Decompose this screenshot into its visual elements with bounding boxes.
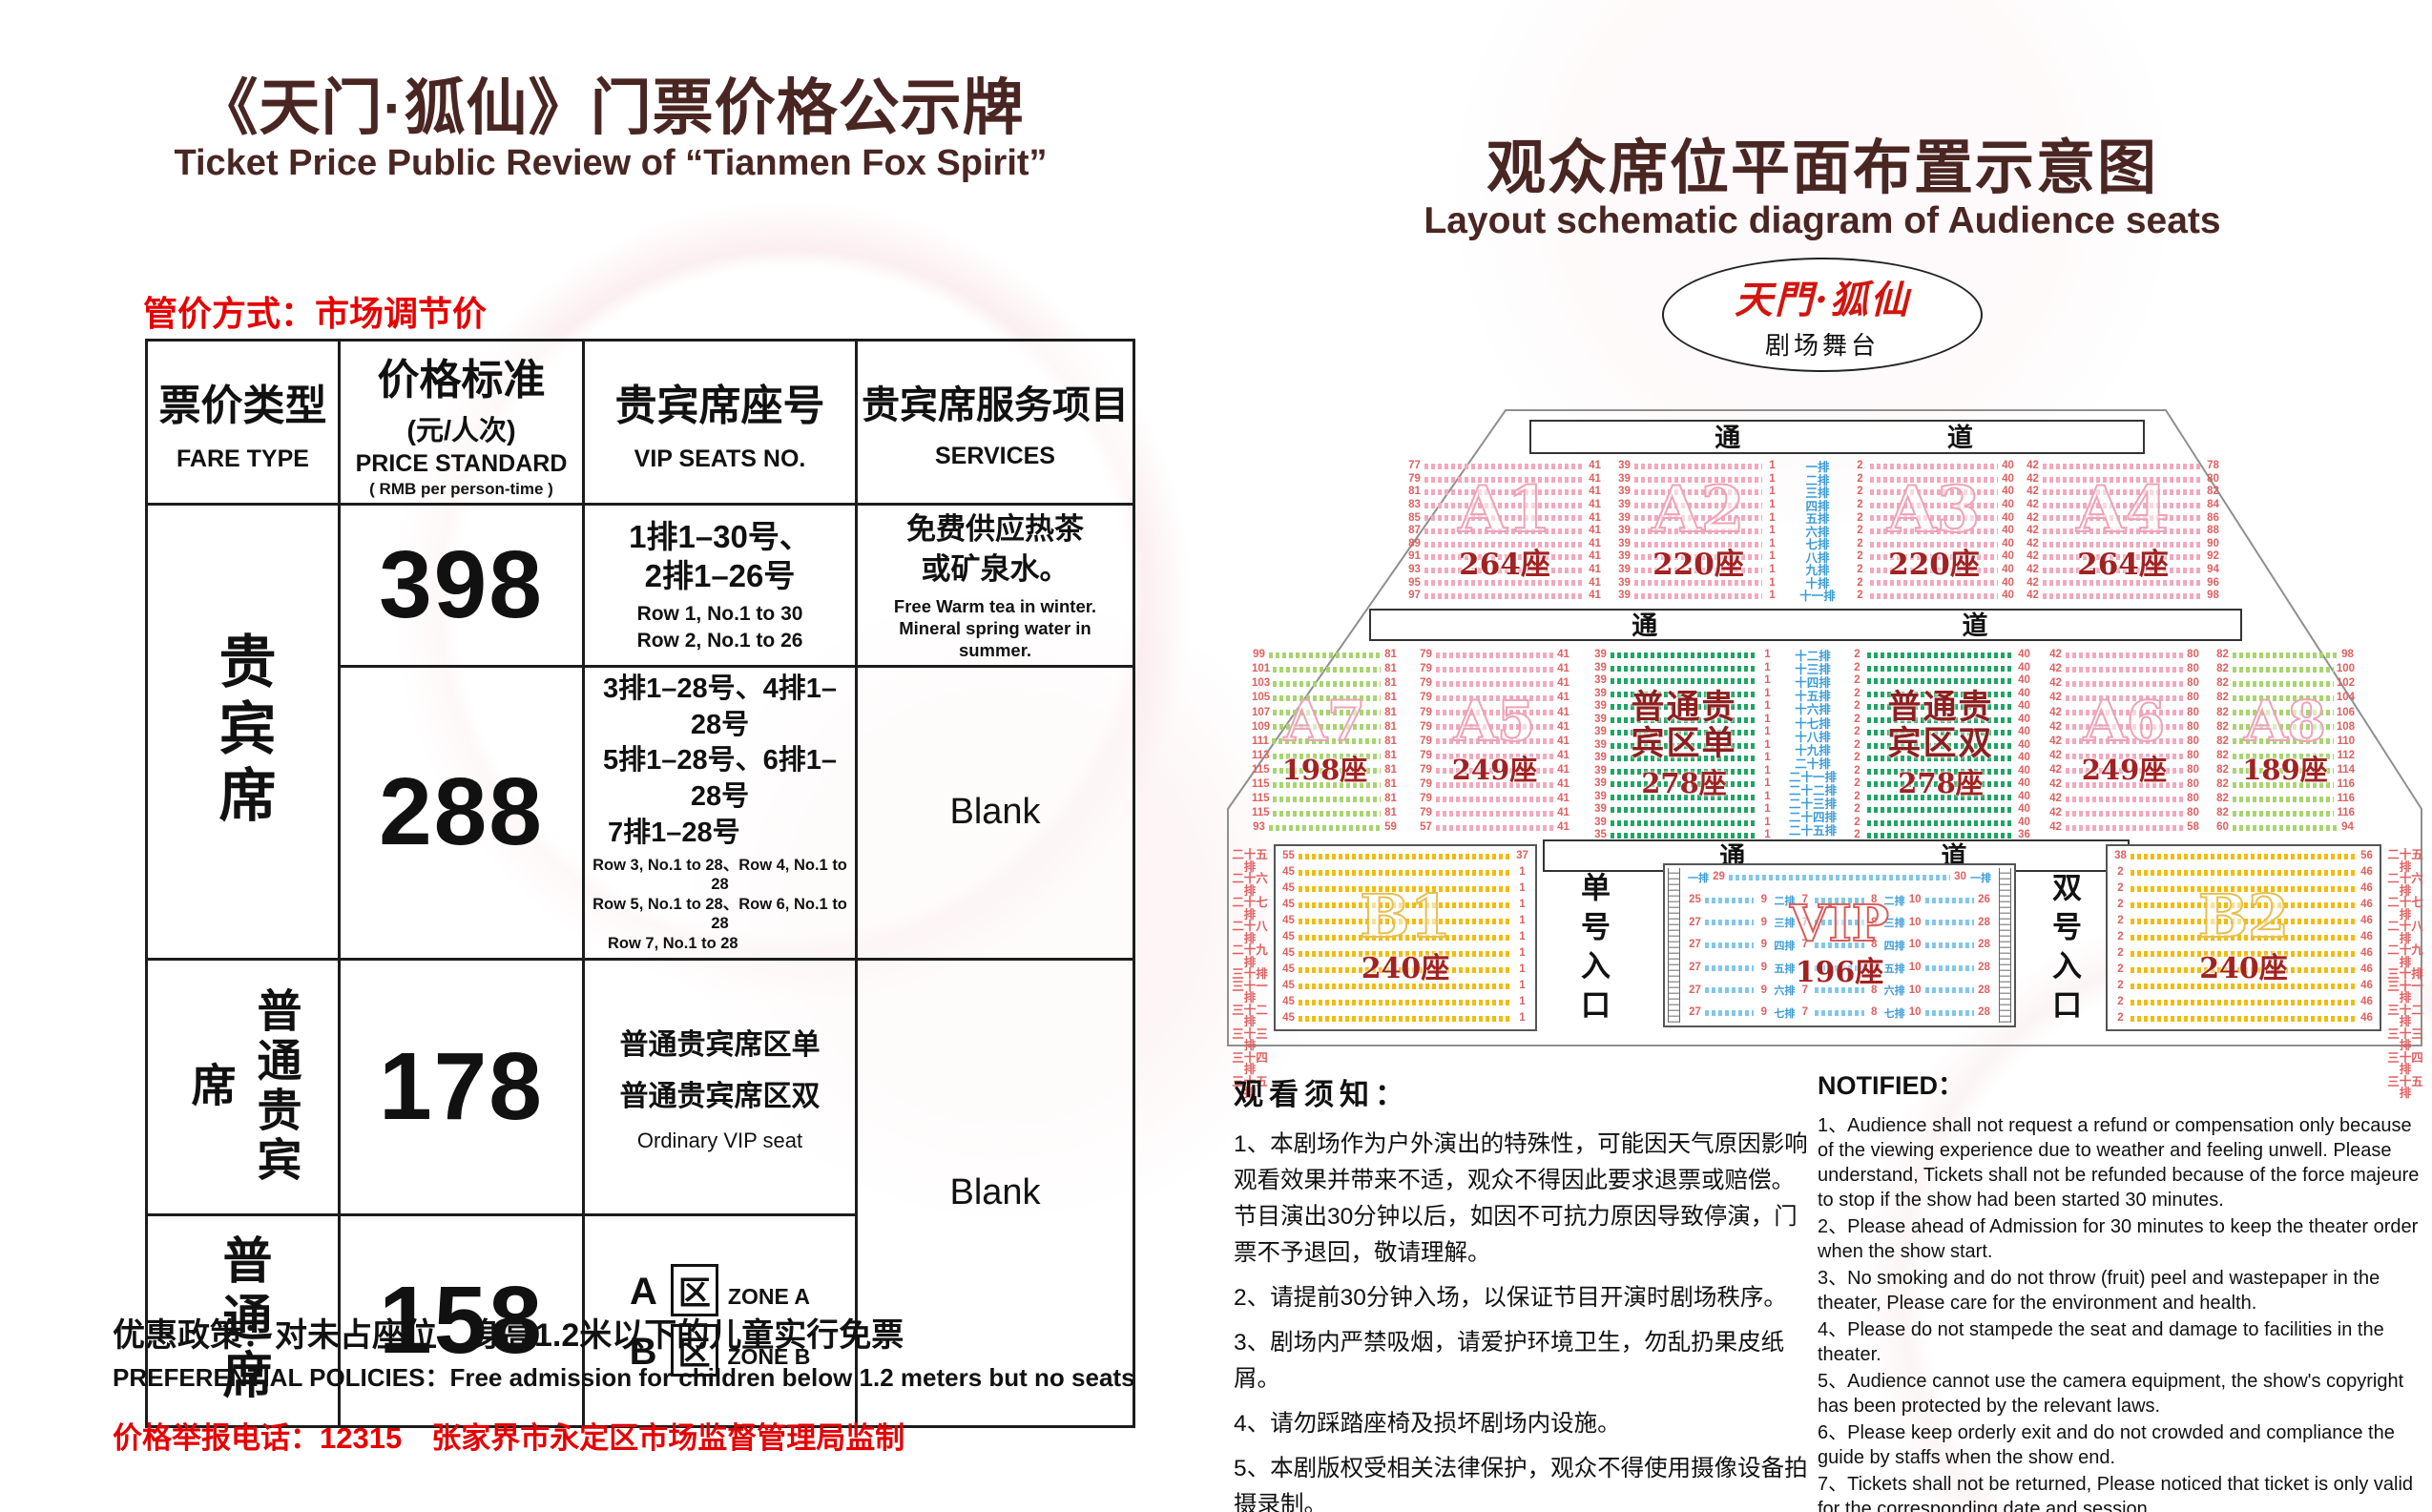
entrance-double: 双号入口 — [2043, 872, 2086, 1028]
list-item: 5、Audience cannot use the camera equipme… — [1818, 1369, 2421, 1419]
corridor-label: 道 — [1962, 605, 1987, 642]
list-item: 十九排 — [1783, 745, 1842, 757]
list-item: 十四排 — [1783, 677, 1842, 690]
header-fare-type: 票价类型 FARE TYPE — [147, 341, 340, 505]
pricing-method-label: 管价方式：市场调节价 — [143, 286, 487, 336]
notices-zh-title: 观看须知： — [1234, 1070, 1808, 1113]
list-item: 二十六排 — [1228, 873, 1272, 897]
seats-398: 1排1–30号、 2排1–26号 Row 1, No.1 to 30 Row 2… — [584, 505, 857, 667]
stage-logo: 天門·狐仙 剧场舞台 — [1662, 258, 1983, 372]
list-item: 二十四排 — [1783, 812, 1842, 824]
list-item: 七排 — [1791, 539, 1844, 551]
zone-a3: 240240240240240240240240240240240A3220座 — [1851, 460, 2017, 603]
price-178: 178 — [340, 959, 584, 1214]
zone-a2: 391391391391391391391391391391391A2220座 — [1615, 460, 1781, 603]
zone-a5: 7941794179417941794179417941794179417941… — [1417, 649, 1572, 835]
zone-a8: 8298821008210282104821068210882110821128… — [2214, 649, 2357, 835]
list-item: 三十二排 — [1228, 1005, 1272, 1028]
policy-zh: 优惠政策：对未占座位、身高1.2米以下的儿童实行免票 — [113, 1309, 904, 1356]
left-subtitle: Ticket Price Public Review of “Tianmen F… — [76, 143, 1145, 184]
list-item: 三十二排 — [2383, 1005, 2427, 1028]
price-report-hotline: 价格举报电话：12315 张家界市永定区市场监督管理局监制 — [113, 1414, 904, 1457]
list-item: 三十三排 — [2383, 1028, 2427, 1052]
list-item: 二十八排 — [2383, 921, 2427, 944]
list-item: 十排 — [1791, 578, 1844, 590]
zone-a4: 4278428042824284428642884290429242944296… — [2024, 460, 2222, 603]
list-item: 二十五排 — [1783, 825, 1842, 838]
table-row-398: 贵宾席 398 1排1–30号、 2排1–26号 Row 1, No.1 to … — [147, 505, 1134, 667]
list-item: 4、请勿踩踏座椅及损坏剧场内设施。 — [1234, 1406, 1808, 1442]
fare-ordinary-vip: 普通贵宾席 — [147, 959, 340, 1214]
zone-a1: 7741794181418341854187418941914193419541… — [1405, 460, 1604, 603]
header-vip-seats: 贵宾席座号 VIP SEATS NO. — [584, 341, 857, 505]
vip-rows: 一排2930一排259二排78二排1026279三排78三排1028279四排7… — [1688, 873, 1991, 1018]
list-item: 二十一排 — [1783, 772, 1842, 784]
zone-b2: 3856246246246246246246246246246246B2240座 — [2106, 844, 2381, 1031]
policy-en: PREFERENTIAL POLICIES：Free admission for… — [113, 1358, 1135, 1394]
services-merged: Blank — [857, 959, 1134, 1426]
services-398: 免费供应热茶 或矿泉水。 Free Warm tea in winter. Mi… — [857, 505, 1134, 667]
zone-ordinary-vip-single: 3913913913913913913913913913913913913913… — [1591, 649, 1777, 842]
notices-en-list: 1、Audience shall not request a refund or… — [1818, 1113, 2421, 1512]
zone-a7: 9981101811038110581107811098111181113811… — [1250, 649, 1400, 835]
price-398: 398 — [340, 505, 584, 667]
seats-288: 3排1–28号、4排1–28号 5排1–28号、6排1–28号 7排1–28号 … — [584, 667, 857, 960]
header-price-en2: ( RMB per person-time ) — [344, 480, 578, 499]
services-288: Blank — [857, 667, 1134, 960]
left-title: 《天门·狐仙》门票价格公示牌 — [76, 59, 1145, 147]
vip-hatch-left — [1668, 868, 1680, 1023]
header-price-zh: 价格标准 — [344, 345, 578, 406]
list-item: 三十排 — [2383, 968, 2427, 981]
list-item: 十六排 — [1783, 704, 1842, 716]
zone-a6: 4280428042804280428042804280428042804280… — [2047, 649, 2202, 835]
zone-vip: 一排2930一排259二排78二排1026279三排78三排1028279四排7… — [1663, 863, 2016, 1027]
list-item: 3、剧场内严禁吸烟，请爱护环境卫生，勿乱扔果皮纸屑。 — [1234, 1325, 1808, 1398]
header-price-en: PRICE STANDARD — [344, 450, 578, 478]
list-item: 3、No smoking and do not throw (fruit) pe… — [1818, 1266, 2421, 1315]
header-fare-type-en: FARE TYPE — [152, 445, 334, 473]
notices-zh: 观看须知： 1、本剧场作为户外演出的特殊性，可能因天气原因影响观看效果并带来不适… — [1234, 1070, 1808, 1512]
list-item: 十五排 — [1783, 691, 1842, 703]
list-item: 二十三排 — [1783, 798, 1842, 811]
stage-brand: 天門·狐仙 — [1735, 269, 1910, 324]
list-item: 4、Please do not stampede the seat and da… — [1818, 1317, 2421, 1367]
table-header-row: 票价类型 FARE TYPE 价格标准 (元/人次) PRICE STANDAR… — [147, 341, 1134, 505]
list-item: 十一排 — [1791, 590, 1844, 603]
row-labels-b1: 二十五排二十六排二十七排二十八排二十九排三十排三十一排三十二排三十三排三十四排三… — [1228, 849, 1272, 1026]
header-vip-seats-zh: 贵宾席座号 — [589, 371, 851, 432]
row-labels-band2: 十二排十三排十四排十五排十六排十七排十八排十九排二十排二十一排二十二排二十三排二… — [1783, 651, 1842, 838]
zone-ordinary-vip-double: 2402402402402402402402402402402402402402… — [1848, 649, 2033, 842]
list-item: 二十五排 — [1228, 849, 1272, 873]
list-item: 五排 — [1791, 513, 1844, 526]
list-item: 十八排 — [1783, 732, 1842, 744]
header-price-unit: (元/人次) — [344, 408, 578, 448]
seat-map: 通 道 通 道 通 道 7741794181418341854187418941… — [1226, 399, 2423, 1047]
fare-vip-label: 贵宾席 — [201, 632, 284, 832]
seats-178: 普通贵宾席区单 普通贵宾席区双 Ordinary VIP seat — [584, 959, 857, 1214]
list-item: 三十一排 — [2383, 981, 2427, 1005]
list-item: 十三排 — [1783, 664, 1842, 676]
list-item: 二十九排 — [1228, 944, 1272, 968]
list-item: 二十六排 — [2383, 873, 2427, 897]
price-288: 288 — [340, 667, 584, 960]
list-item: 八排 — [1791, 552, 1844, 565]
corridor-middle: 通 道 — [1369, 609, 2242, 641]
table-row-178: 普通贵宾席 178 普通贵宾席区单 普通贵宾席区双 Ordinary VIP s… — [147, 959, 1134, 1214]
list-item: 三十排 — [1228, 968, 1272, 981]
list-item: 三十一排 — [1228, 981, 1272, 1005]
list-item: 二十七排 — [2383, 897, 2427, 921]
header-vip-seats-en: VIP SEATS NO. — [589, 445, 851, 473]
vip-hatch-right — [1999, 868, 2011, 1023]
list-item: 二排 — [1791, 475, 1844, 487]
list-item: 2、Please ahead of Admission for 30 minut… — [1818, 1214, 2421, 1264]
zone-b1: 5537451451451451451451451451451451B1240座 — [1274, 844, 1537, 1031]
notices-zh-list: 1、本剧场作为户外演出的特殊性，可能因天气原因影响观看效果并带来不适，观众不得因… — [1234, 1127, 1808, 1512]
price-table: 票价类型 FARE TYPE 价格标准 (元/人次) PRICE STANDAR… — [145, 339, 1135, 1428]
list-item: 三排 — [1791, 487, 1844, 500]
corridor-label: 道 — [1947, 417, 1973, 454]
notices-en-title: NOTIFIED： — [1818, 1065, 2421, 1102]
row-labels-b2: 二十五排二十六排二十七排二十八排二十九排三十排三十一排三十二排三十三排三十四排三… — [2383, 849, 2427, 1026]
corridor-top: 通 道 — [1529, 420, 2145, 454]
fare-vip: 贵宾席 — [147, 505, 340, 960]
entrance-single: 单号入口 — [1571, 872, 1614, 1028]
list-item: 2、请提前30分钟入场，以保证节目开演时剧场秩序。 — [1234, 1280, 1808, 1316]
list-item: 二十八排 — [1228, 921, 1272, 944]
list-item: 九排 — [1791, 565, 1844, 577]
corridor-label: 通 — [1632, 605, 1657, 642]
notices-en: NOTIFIED： 1、Audience shall not request a… — [1818, 1065, 2421, 1512]
list-item: 1、本剧场作为户外演出的特殊性，可能因天气原因影响观看效果并带来不适，观众不得因… — [1234, 1127, 1808, 1272]
row-labels-band1: 一排二排三排四排五排六排七排八排九排十排十一排 — [1791, 462, 1844, 603]
list-item: 一排 — [1791, 462, 1844, 474]
list-item: 1、Audience shall not request a refund or… — [1818, 1113, 2421, 1212]
list-item: 6、Please keep orderly exit and do not cr… — [1818, 1420, 2421, 1470]
list-item: 二十排 — [1783, 758, 1842, 771]
list-item: 7、Tickets shall not be returned, Please … — [1818, 1472, 2421, 1512]
list-item: 二十九排 — [2383, 944, 2427, 968]
list-item: 二十七排 — [1228, 897, 1272, 921]
list-item: 二十二排 — [1783, 785, 1842, 797]
list-item: 二十五排 — [2383, 849, 2427, 873]
list-item: 5、本剧版权受相关法律保护，观众不得使用摄像设备拍摄录制。 — [1234, 1451, 1808, 1512]
header-price-standard: 价格标准 (元/人次) PRICE STANDARD ( RMB per per… — [340, 341, 584, 505]
header-fare-type-zh: 票价类型 — [152, 371, 334, 432]
header-services: 贵宾席服务项目 SERVICES — [857, 341, 1134, 505]
header-services-en: SERVICES — [862, 443, 1129, 470]
header-services-zh: 贵宾席服务项目 — [862, 374, 1129, 429]
right-title: 观众席位平面布置示意图 — [1269, 119, 2376, 205]
list-item: 十二排 — [1783, 651, 1842, 663]
fare-ordinary-vip-label: 普通贵宾席 — [177, 964, 309, 1210]
stage-label: 剧场舞台 — [1765, 326, 1880, 362]
list-item: 三十三排 — [1228, 1028, 1272, 1052]
list-item: 四排 — [1791, 501, 1844, 513]
corridor-label: 通 — [1715, 417, 1740, 454]
right-subtitle: Layout schematic diagram of Audience sea… — [1269, 200, 2376, 242]
list-item: 六排 — [1791, 527, 1844, 539]
list-item: 十七排 — [1783, 718, 1842, 731]
